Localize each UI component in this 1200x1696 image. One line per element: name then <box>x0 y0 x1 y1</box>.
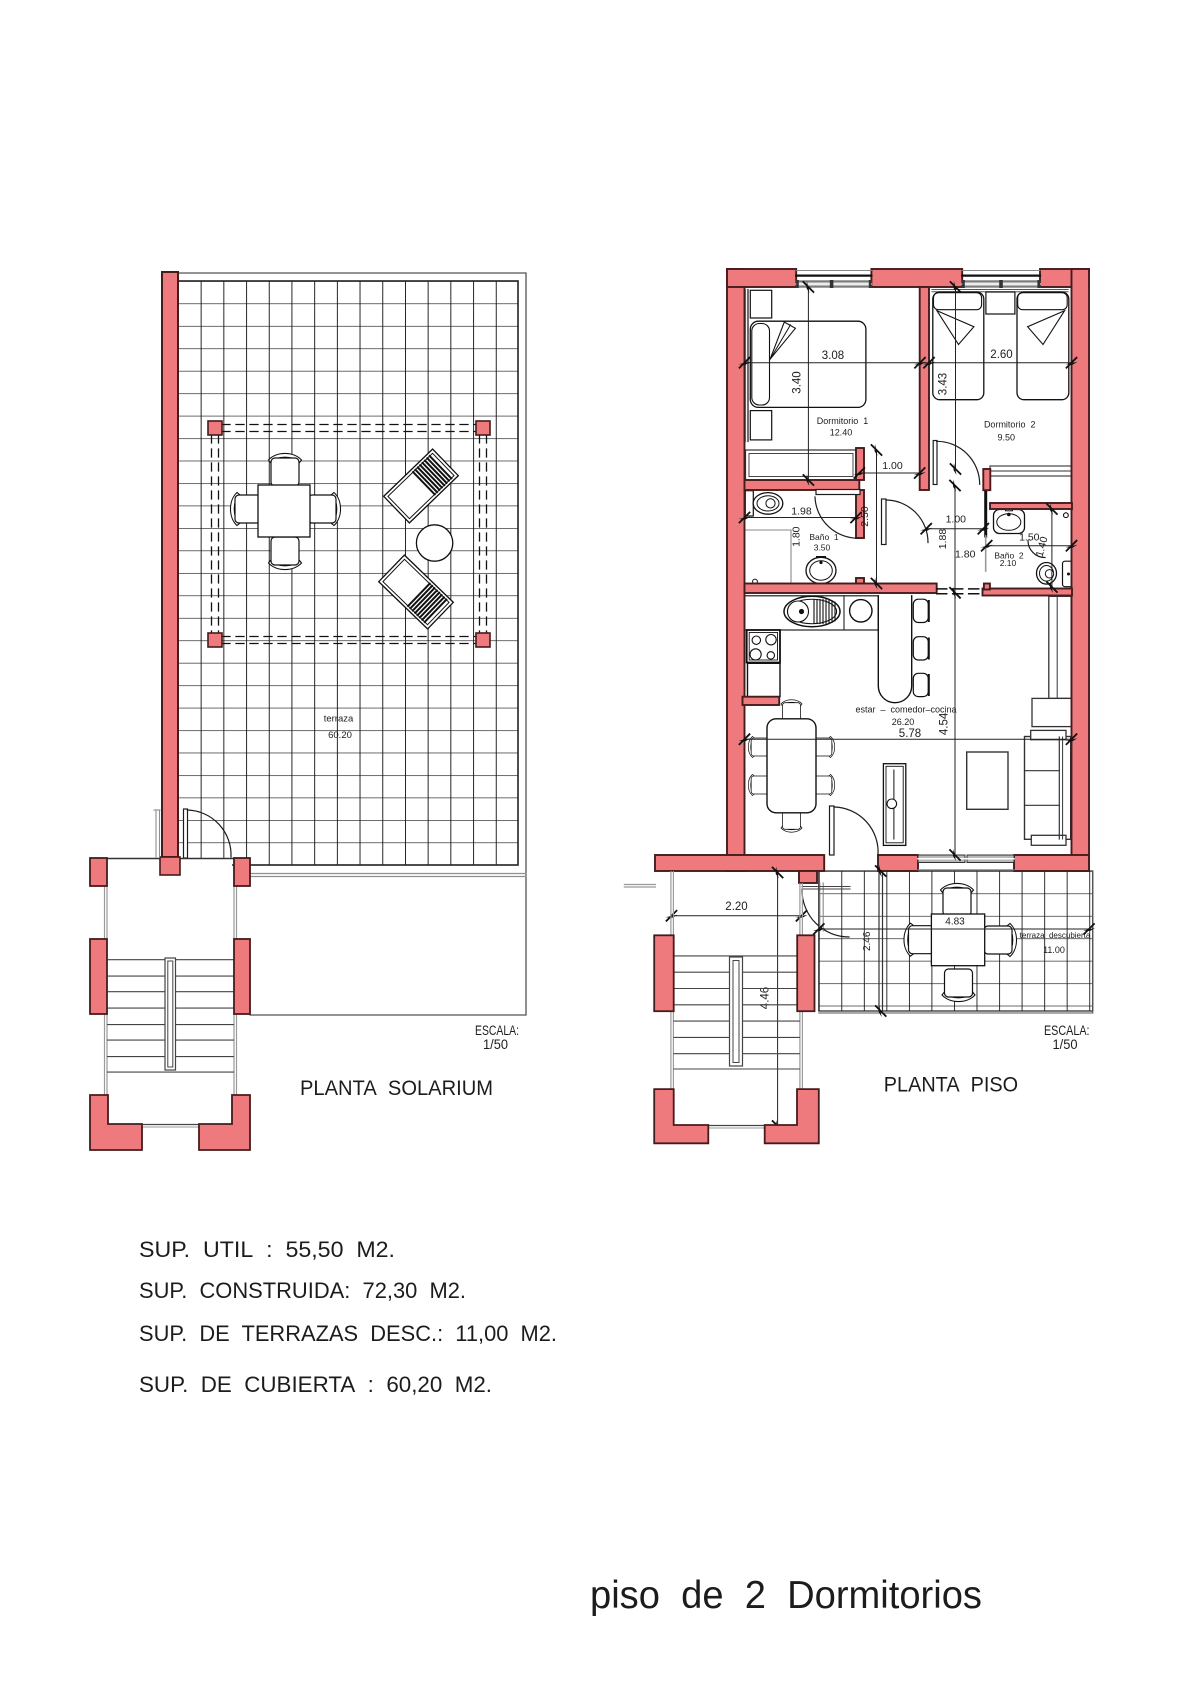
svg-text:1/50: 1/50 <box>483 1037 508 1052</box>
svg-text:1.88: 1.88 <box>937 529 949 550</box>
svg-text:12.40: 12.40 <box>830 428 853 438</box>
svg-text:4.54: 4.54 <box>939 712 951 735</box>
svg-text:1.80: 1.80 <box>791 526 803 547</box>
svg-text:3.43: 3.43 <box>938 373 950 395</box>
svg-text:Dormitorio 2: Dormitorio 2 <box>984 420 1036 430</box>
svg-text:estar – comedor–cocina: estar – comedor–cocina <box>855 705 956 715</box>
svg-text:5.78: 5.78 <box>899 728 921 740</box>
svg-text:terraza descubierta: terraza descubierta <box>1020 931 1091 940</box>
svg-text:3.50: 3.50 <box>814 543 831 553</box>
svg-text:terraza: terraza <box>324 714 354 725</box>
svg-text:Baño 1: Baño 1 <box>809 532 839 542</box>
svg-text:2.20: 2.20 <box>725 901 747 913</box>
svg-text:3.08: 3.08 <box>822 350 844 362</box>
svg-text:4.83: 4.83 <box>945 917 965 928</box>
svg-text:Dormitorio 1: Dormitorio 1 <box>817 416 869 426</box>
svg-text:1.98: 1.98 <box>791 506 812 518</box>
svg-text:PLANTA PISO: PLANTA PISO <box>884 1073 1018 1097</box>
svg-text:60.20: 60.20 <box>328 730 352 741</box>
svg-text:3.40: 3.40 <box>792 371 804 393</box>
svg-text:11.00: 11.00 <box>1043 945 1065 955</box>
svg-text:1.80: 1.80 <box>955 548 976 560</box>
svg-text:2.60: 2.60 <box>990 349 1012 361</box>
svg-text:ESCALA:: ESCALA: <box>1044 1023 1090 1038</box>
svg-text:1.00: 1.00 <box>946 514 967 526</box>
svg-text:9.50: 9.50 <box>998 433 1016 443</box>
svg-text:piso de 2 Dormitorios: piso de 2 Dormitorios <box>590 1574 982 1617</box>
svg-text:SUP. DE CUBIERTA : 60,20: SUP. DE CUBIERTA : 60,20 M2. <box>139 1372 492 1397</box>
svg-text:ESCALA:: ESCALA: <box>475 1023 519 1038</box>
svg-text:2.50: 2.50 <box>859 506 871 527</box>
svg-text:2.10: 2.10 <box>1000 558 1017 568</box>
svg-text:PLANTA SOLARIUM: PLANTA SOLARIUM <box>300 1076 493 1100</box>
svg-text:SUP. CONSTRUIDA: 72,30 M2.: SUP. CONSTRUIDA: 72,30 M2. <box>139 1278 466 1303</box>
svg-text:26.20: 26.20 <box>892 717 915 727</box>
svg-text:SUP. UTIL : 55,50 M2.: SUP. UTIL : 55,50 M2. <box>139 1237 395 1262</box>
svg-text:2.46: 2.46 <box>862 931 873 951</box>
svg-text:SUP. DE TERRAZAS DESC.: 11: SUP. DE TERRAZAS DESC.: 11,00 M2. <box>139 1321 557 1346</box>
svg-text:1.00: 1.00 <box>882 460 903 472</box>
svg-text:1/50: 1/50 <box>1053 1037 1078 1052</box>
svg-text:4.46: 4.46 <box>760 987 772 1009</box>
